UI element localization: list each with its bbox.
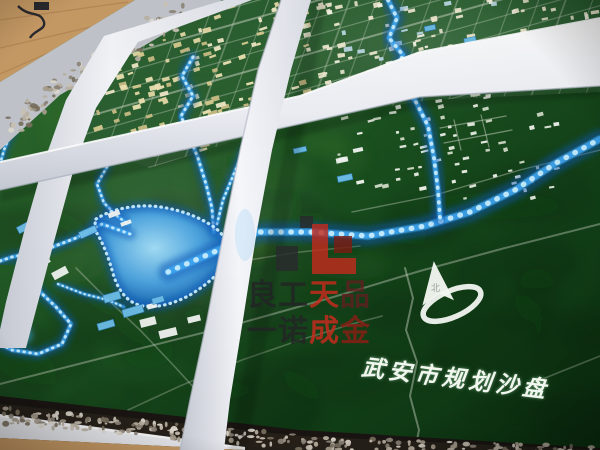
title-char: 市 — [414, 361, 444, 391]
watermark-char: 诺 — [278, 315, 309, 348]
watermark-char: 一 — [247, 315, 278, 348]
title-char: 沙 — [494, 370, 524, 400]
watermark-char: 成 — [309, 315, 340, 348]
title-char: 划 — [467, 367, 497, 397]
planning-model-photo: 良工天品 一诺成金 北 武安市规划沙盘 — [0, 0, 600, 450]
watermark-line-2: 一诺成金 — [247, 306, 371, 350]
title-char: 武 — [360, 354, 390, 384]
watermark-logo — [270, 212, 362, 276]
compass-north-label: 北 — [431, 283, 440, 293]
title-char: 盘 — [521, 374, 551, 404]
north-compass-icon: 北 — [405, 258, 495, 338]
title-char: 安 — [387, 357, 417, 387]
watermark-char: 金 — [340, 315, 371, 348]
title-char: 规 — [440, 364, 470, 394]
